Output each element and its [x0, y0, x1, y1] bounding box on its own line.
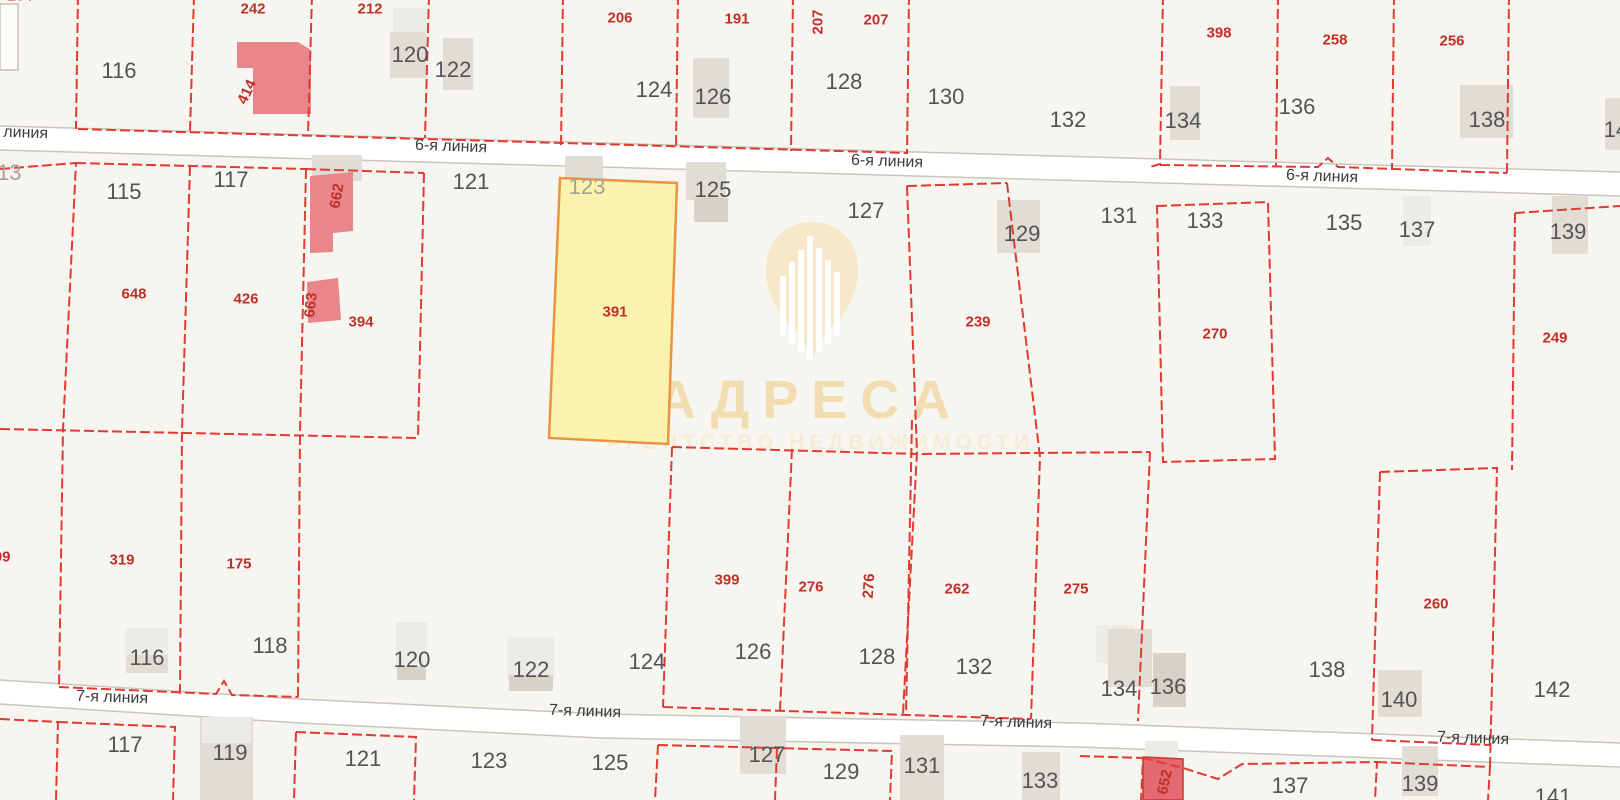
- parcel-boundary: [180, 166, 190, 694]
- building-gray: [507, 637, 554, 679]
- parcel-boundary: [294, 732, 296, 800]
- parcel-boundary: [1512, 213, 1515, 470]
- building-gray: [997, 200, 1040, 253]
- parcel-boundary: [655, 745, 658, 800]
- watermark-building-bar: [825, 260, 831, 344]
- parcel-boundary: [0, 163, 76, 687]
- building-pink: [237, 42, 311, 114]
- parcel-boundary: [0, 719, 58, 800]
- parcel-boundary: [1380, 468, 1497, 767]
- parcel-boundary: [418, 173, 424, 438]
- building-gray: [1403, 196, 1431, 246]
- map-layers[interactable]: [0, 0, 1620, 800]
- building-gray: [1170, 86, 1200, 140]
- building-gray: [1552, 196, 1588, 254]
- parcel-boundary: [76, 163, 306, 169]
- watermark-building-bar: [816, 248, 822, 352]
- building-pink: [307, 278, 341, 323]
- parcel-boundary: [298, 169, 306, 697]
- watermark-building-bar: [789, 262, 795, 344]
- building-gray: [202, 717, 251, 743]
- parcel-boundary: [676, 0, 678, 149]
- building-gray: [900, 735, 944, 800]
- building-gray: [390, 32, 426, 78]
- highlighted-parcel[interactable]: [549, 178, 677, 444]
- parcel-boundary: [791, 0, 793, 151]
- building-gray: [397, 666, 426, 680]
- parcel-boundary: [1080, 756, 1143, 800]
- building-gray: [694, 198, 728, 222]
- building-gray: [509, 675, 553, 691]
- parcel-boundary: [58, 722, 175, 800]
- building-gray: [740, 716, 786, 774]
- building-gray: [1605, 98, 1620, 150]
- building-gray: [443, 38, 473, 90]
- parcel-boundary: [907, 0, 909, 154]
- watermark-building-bar: [780, 276, 786, 336]
- road: [0, 126, 1620, 196]
- parcel-boundary: [672, 447, 917, 454]
- building-gray: [1108, 629, 1152, 687]
- parcel-boundary: [1007, 183, 1040, 719]
- parcel-boundary: [903, 186, 917, 714]
- parcel-boundary: [1150, 0, 1163, 167]
- watermark-building-bar: [798, 250, 804, 352]
- parcel-boundary: [780, 449, 792, 711]
- parcel-boundary: [190, 0, 194, 132]
- building-pink: [310, 172, 353, 253]
- parcel-boundary: [663, 447, 672, 707]
- cadastral-map[interactable]: АДРЕСА АГЕНТСТВО НЕДВИЖИМОСТИ 1161201221…: [0, 0, 1620, 800]
- building-gray: [1378, 670, 1422, 717]
- building-gray: [1402, 746, 1438, 796]
- parcel-boundary: [1392, 0, 1394, 170]
- parcel-boundary: [1157, 202, 1275, 462]
- parcel-boundary: [907, 183, 1007, 186]
- parcel-boundary: [296, 732, 416, 800]
- parcel-boundary: [1276, 0, 1278, 167]
- building-gray: [1460, 85, 1513, 138]
- parcel-boundary: [1507, 0, 1509, 173]
- building-gray: [686, 162, 726, 200]
- parcel-boundary: [561, 0, 563, 146]
- building-gray: [396, 622, 427, 664]
- building-gray: [126, 655, 168, 673]
- parcel-boundary: [76, 0, 78, 129]
- building-gray: [1022, 752, 1060, 800]
- building-outline: [0, 4, 18, 70]
- building-gray: [1153, 653, 1186, 707]
- building-gray: [1145, 741, 1178, 758]
- watermark-building-bar: [834, 272, 840, 336]
- watermark-building-bar: [807, 236, 813, 360]
- parcel-boundary: [922, 452, 1150, 454]
- building-gray: [693, 58, 729, 118]
